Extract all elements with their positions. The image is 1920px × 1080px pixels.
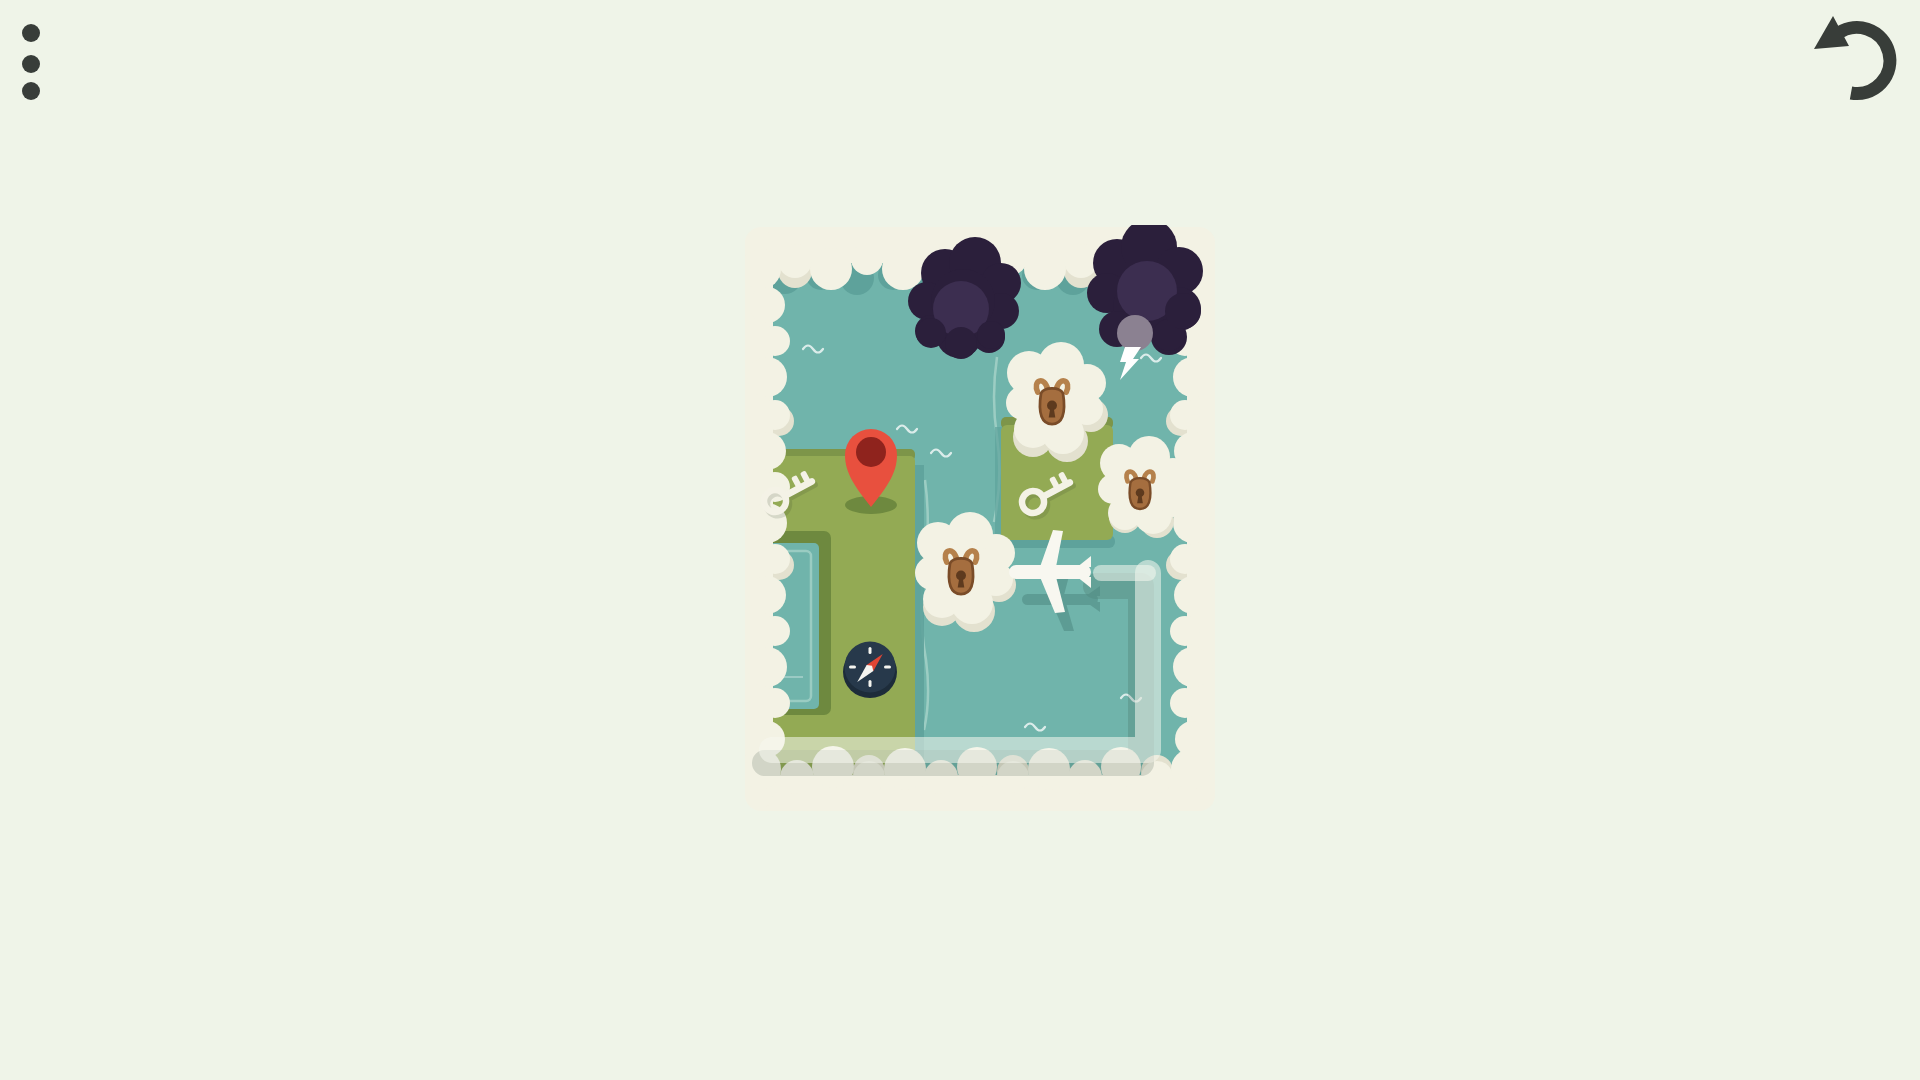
storm-gray-puff bbox=[1117, 315, 1153, 351]
menu-button[interactable] bbox=[14, 16, 50, 108]
compass bbox=[843, 642, 897, 699]
destination-pin bbox=[845, 429, 897, 514]
undo-button[interactable] bbox=[1800, 5, 1910, 115]
kebab-menu-icon bbox=[14, 16, 50, 108]
undo-arrow-icon bbox=[1800, 5, 1910, 115]
game-map[interactable] bbox=[745, 225, 1215, 813]
